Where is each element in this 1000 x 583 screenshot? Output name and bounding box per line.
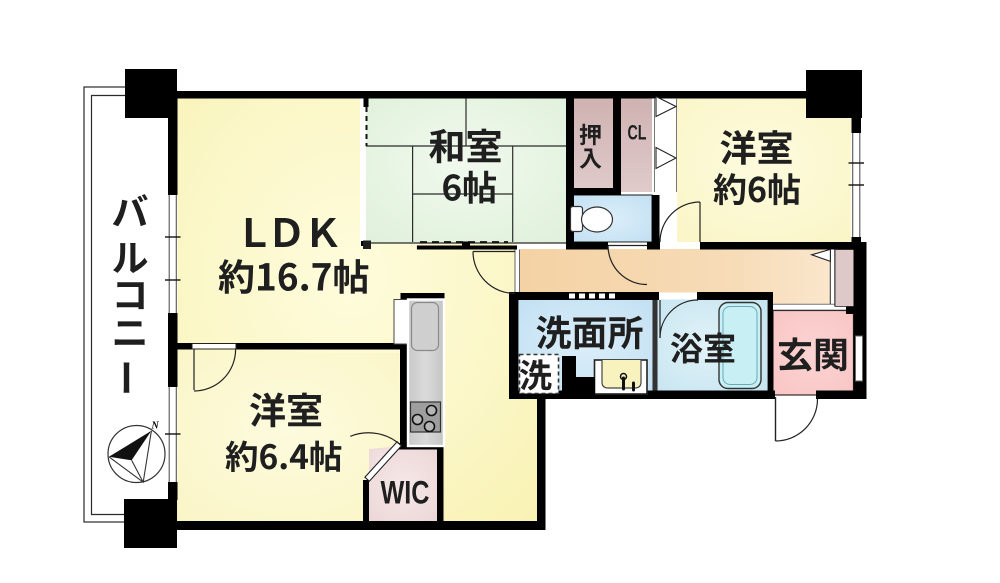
svg-text:WIC: WIC — [381, 475, 430, 511]
svg-text:N: N — [151, 421, 160, 432]
svg-text:CL: CL — [628, 122, 647, 145]
